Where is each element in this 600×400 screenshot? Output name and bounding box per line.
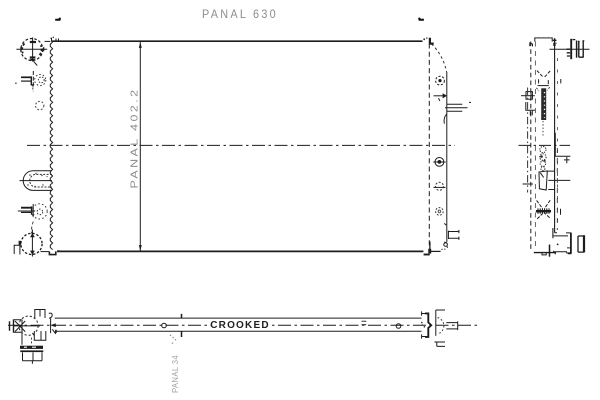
svg-text:PANAL 630: PANAL 630 [202, 9, 278, 21]
svg-text:CROOKED: CROOKED [210, 320, 270, 331]
svg-text:PANAL 34: PANAL 34 [171, 355, 180, 393]
svg-text:PANAL 402.2: PANAL 402.2 [130, 88, 141, 189]
